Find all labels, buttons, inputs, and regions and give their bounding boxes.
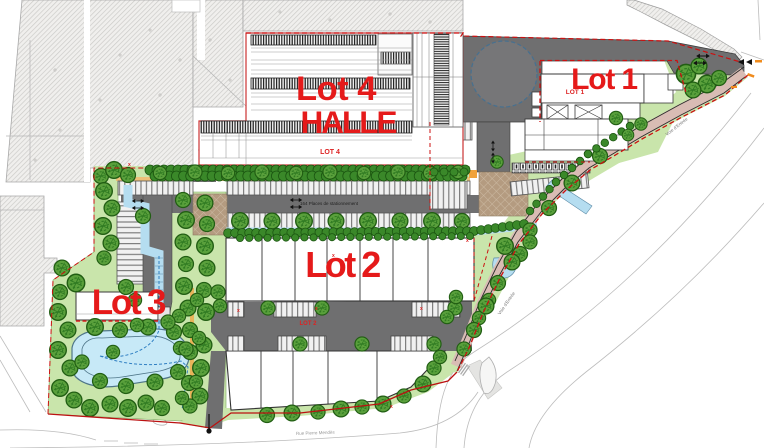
svg-text:LOT 2: LOT 2	[299, 321, 317, 327]
svg-text:x: x	[466, 238, 469, 244]
svg-text:Lot 3: Lot 3	[92, 283, 166, 322]
svg-text:x: x	[332, 253, 335, 259]
svg-text:164 Places de stationnement: 164 Places de stationnement	[300, 201, 359, 206]
svg-text:x: x	[128, 162, 131, 168]
svg-text:Lot 4: Lot 4	[296, 70, 376, 108]
svg-text:x: x	[237, 308, 240, 314]
svg-text:HALLE: HALLE	[301, 104, 397, 140]
svg-text:x: x	[420, 306, 423, 312]
svg-text:LOT 4: LOT 4	[320, 149, 340, 156]
svg-text:x: x	[390, 404, 393, 410]
svg-text:x: x	[315, 306, 318, 312]
svg-text:LOT 1: LOT 1	[566, 89, 585, 96]
svg-text:Lot 2: Lot 2	[305, 244, 380, 285]
